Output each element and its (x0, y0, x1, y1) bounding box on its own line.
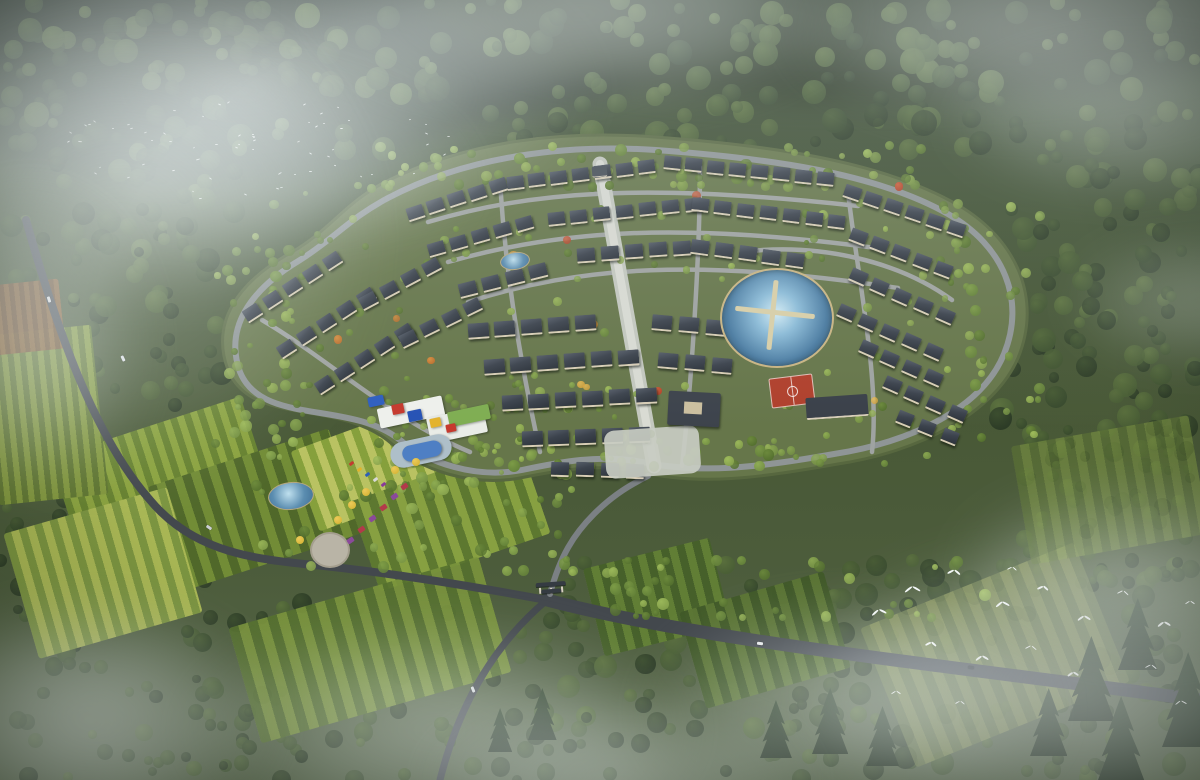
aerial-render-scene (0, 0, 1200, 780)
vignette-overlay (0, 0, 1200, 780)
